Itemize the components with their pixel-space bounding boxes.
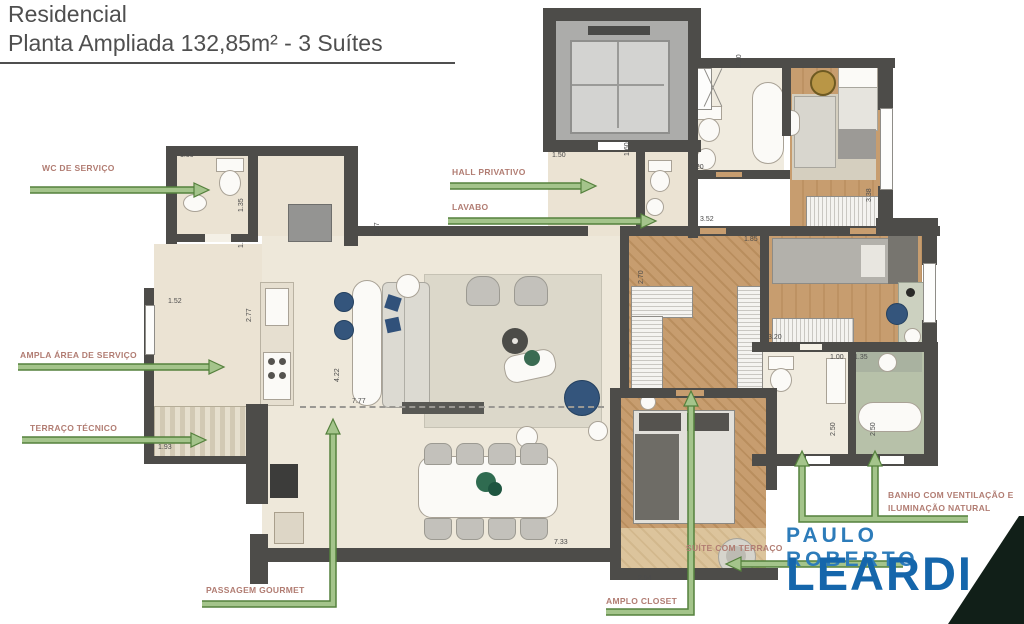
door-gap bbox=[716, 172, 742, 177]
window bbox=[923, 263, 936, 323]
dimension-label: 4.22 bbox=[334, 368, 341, 382]
dining-chair bbox=[424, 518, 452, 540]
kitchen-sink bbox=[265, 288, 289, 326]
wall-segment bbox=[610, 568, 778, 580]
dimension-label: 3.20 bbox=[768, 334, 782, 341]
dimension-label: 3.57 bbox=[374, 222, 381, 236]
closet-wardrobe bbox=[631, 316, 663, 390]
floor-plan-page: Residencial Planta Ampliada 132,85m² - 3… bbox=[0, 0, 1024, 624]
dimension-label: 2.50 bbox=[870, 422, 877, 436]
dimension-label: 2.77 bbox=[246, 308, 253, 322]
window bbox=[145, 305, 155, 355]
dimension-label: 2.50 bbox=[830, 422, 837, 436]
dimension-label: 1.52 bbox=[168, 298, 182, 305]
door-gap bbox=[676, 390, 704, 396]
dining-chair bbox=[488, 518, 516, 540]
armchair bbox=[514, 276, 548, 306]
wall-segment bbox=[246, 404, 268, 504]
burner-icon bbox=[279, 372, 286, 379]
master-pillow bbox=[639, 413, 681, 431]
door-gap bbox=[205, 234, 231, 242]
suite1-bed-pillow bbox=[838, 67, 878, 89]
title-underline bbox=[0, 62, 455, 64]
wall-segment bbox=[782, 66, 791, 136]
dimension-label: 7.77 bbox=[352, 398, 366, 405]
bar-stool bbox=[334, 320, 354, 340]
centerpiece-plant-icon bbox=[488, 482, 502, 496]
wall-segment bbox=[752, 342, 938, 352]
label-area-servico: AMPLA ÁREA DE SERVIÇO bbox=[20, 350, 137, 360]
window bbox=[880, 108, 893, 190]
dimension-label: 2.70 bbox=[638, 270, 645, 284]
logo-text-main: LEARDI bbox=[786, 546, 973, 601]
label-wc-servico: WC DE SERVIÇO bbox=[42, 163, 115, 173]
title-line2: Planta Ampliada 132,85m² - 3 Suítes bbox=[8, 29, 383, 58]
wall-segment bbox=[636, 152, 645, 236]
wall-segment bbox=[610, 388, 621, 580]
elevator-door-bar bbox=[588, 26, 650, 35]
dimension-label: 2.54 bbox=[638, 575, 652, 582]
wall-segment bbox=[766, 388, 777, 490]
label-passagem-gourmet: PASSAGEM GOURMET bbox=[206, 585, 305, 595]
door-gap bbox=[800, 344, 822, 350]
closet-wardrobe bbox=[631, 286, 693, 318]
burner-icon bbox=[279, 358, 286, 365]
label-hall-privativo: HALL PRIVATIVO bbox=[452, 167, 526, 177]
plant-pot-icon bbox=[810, 70, 836, 96]
wall-segment bbox=[248, 153, 258, 241]
wc-sink bbox=[183, 194, 207, 212]
master-duvet-dark bbox=[635, 434, 679, 520]
wall-segment bbox=[543, 8, 701, 21]
door-gap bbox=[700, 228, 726, 234]
wall-segment bbox=[848, 350, 856, 460]
wall-segment bbox=[620, 226, 629, 396]
blue-armchair bbox=[564, 380, 600, 416]
washer bbox=[288, 204, 332, 242]
label-banho-line1: BANHO COM VENTILAÇÃO E bbox=[888, 490, 1014, 500]
vanity-stool bbox=[886, 303, 908, 325]
label-banho-line2: ILUMINAÇÃO NATURAL bbox=[888, 503, 991, 513]
wall-segment bbox=[688, 66, 698, 238]
dining-chair bbox=[520, 443, 548, 465]
bath1-vanity bbox=[826, 358, 846, 404]
lavabo-sink bbox=[646, 198, 664, 216]
dimension-label: 1.85 bbox=[744, 236, 758, 243]
dining-chair bbox=[456, 518, 484, 540]
kitchen-cabinet bbox=[274, 512, 304, 544]
dining-chair bbox=[520, 518, 548, 540]
elevator-car bbox=[570, 40, 670, 134]
dimension-label: 1.50 bbox=[180, 152, 194, 159]
sofa-cushion-line bbox=[404, 284, 405, 404]
dining-chair bbox=[456, 443, 484, 465]
kitchen-island bbox=[352, 280, 382, 406]
master-pillow bbox=[687, 413, 729, 431]
ceiling-dashed-line bbox=[300, 406, 604, 408]
dimension-label: 3.38 bbox=[866, 188, 873, 202]
burner-icon bbox=[268, 358, 275, 365]
dimension-label: 7.33 bbox=[554, 539, 568, 546]
suite1-bed-blanket bbox=[838, 129, 876, 159]
suite1-bed bbox=[838, 87, 878, 131]
dimension-label: 1.76 bbox=[238, 234, 245, 248]
dimension-label: 1.93 bbox=[158, 444, 172, 451]
media-console bbox=[402, 402, 484, 414]
bath2-sink bbox=[878, 353, 897, 372]
label-suite-terraco: SUÍTE COM TERRAÇO bbox=[686, 543, 783, 553]
bath2-tub bbox=[858, 402, 922, 432]
dimension-label: 1.35 bbox=[854, 354, 868, 361]
bar-stool bbox=[334, 292, 354, 312]
coffee-table-dot bbox=[512, 338, 518, 344]
label-terraco-tecnico: TERRAÇO TÉCNICO bbox=[30, 423, 117, 433]
oven bbox=[270, 464, 298, 498]
suite2-headboard bbox=[888, 236, 918, 284]
dimension-label: 1.50 bbox=[552, 152, 566, 159]
wall-segment bbox=[688, 58, 895, 68]
dimension-label: 1.20 bbox=[690, 164, 704, 171]
dining-chair bbox=[424, 443, 452, 465]
page-title: Residencial Planta Ampliada 132,85m² - 3… bbox=[8, 0, 383, 58]
label-lavabo: LAVABO bbox=[452, 202, 488, 212]
wall-segment bbox=[543, 8, 556, 152]
elevator-grid-v bbox=[617, 42, 619, 128]
sofa-pillow bbox=[385, 317, 402, 334]
wall-segment bbox=[262, 548, 620, 562]
vanity-sink bbox=[906, 288, 915, 297]
bathtub bbox=[752, 82, 784, 164]
suite2-pillow bbox=[860, 244, 886, 278]
armchair bbox=[466, 276, 500, 306]
plant-icon bbox=[524, 350, 540, 366]
wall-segment bbox=[358, 226, 588, 236]
side-table bbox=[396, 274, 420, 298]
title-line1: Residencial bbox=[8, 0, 383, 29]
toilet-bowl bbox=[698, 118, 720, 142]
wall-segment bbox=[924, 345, 938, 465]
door-gap bbox=[850, 228, 876, 234]
wall-segment bbox=[166, 146, 177, 244]
label-amplo-closet: AMPLO CLOSET bbox=[606, 596, 677, 606]
dimension-label: 2.30 bbox=[736, 54, 743, 68]
hall-privativo-floor bbox=[548, 152, 640, 236]
dimension-label: 1.35 bbox=[238, 198, 245, 212]
dimension-label: 3.52 bbox=[700, 216, 714, 223]
wall-segment bbox=[344, 146, 358, 246]
wall-segment bbox=[166, 146, 358, 156]
wall-segment bbox=[752, 454, 938, 466]
suite1-desk bbox=[794, 96, 836, 168]
wall-segment bbox=[760, 236, 769, 348]
side-table bbox=[588, 421, 608, 441]
wall-segment bbox=[878, 58, 893, 110]
door-gap bbox=[806, 456, 830, 464]
wall-segment bbox=[620, 226, 940, 236]
dimension-label: 1.00 bbox=[830, 354, 844, 361]
wc-toilet-bowl bbox=[219, 170, 241, 196]
terraco-tecnico-floor bbox=[154, 406, 250, 460]
dining-chair bbox=[488, 443, 516, 465]
burner-icon bbox=[268, 372, 275, 379]
lavabo-toilet-bowl bbox=[650, 170, 670, 192]
door-gap bbox=[880, 456, 904, 464]
dimension-label: 1.60 bbox=[624, 142, 631, 156]
